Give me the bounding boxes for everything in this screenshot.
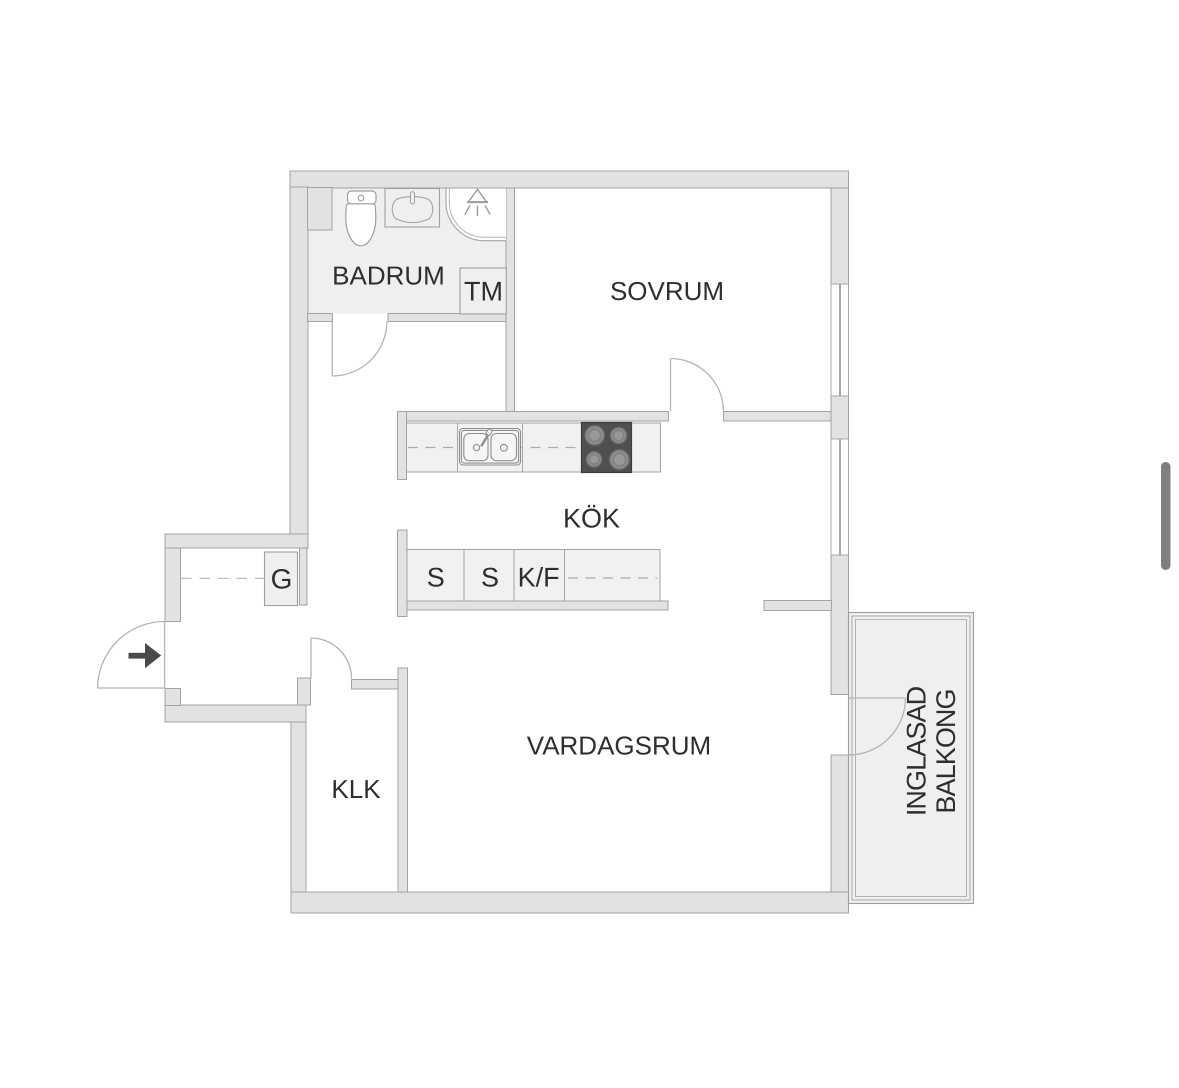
svg-text:G: G [271, 564, 293, 595]
svg-text:SOVRUM: SOVRUM [610, 276, 724, 306]
svg-text:K/F: K/F [518, 562, 560, 592]
svg-text:BALKONG: BALKONG [931, 689, 961, 813]
svg-text:KLK: KLK [331, 774, 381, 804]
svg-text:INGLASAD: INGLASAD [902, 686, 932, 816]
svg-text:TM: TM [464, 277, 503, 307]
svg-text:VARDAGSRUM: VARDAGSRUM [527, 731, 711, 761]
svg-text:S: S [481, 562, 499, 592]
svg-text:S: S [427, 562, 445, 592]
svg-text:BADRUM: BADRUM [332, 261, 445, 291]
svg-text:KÖK: KÖK [563, 504, 620, 534]
